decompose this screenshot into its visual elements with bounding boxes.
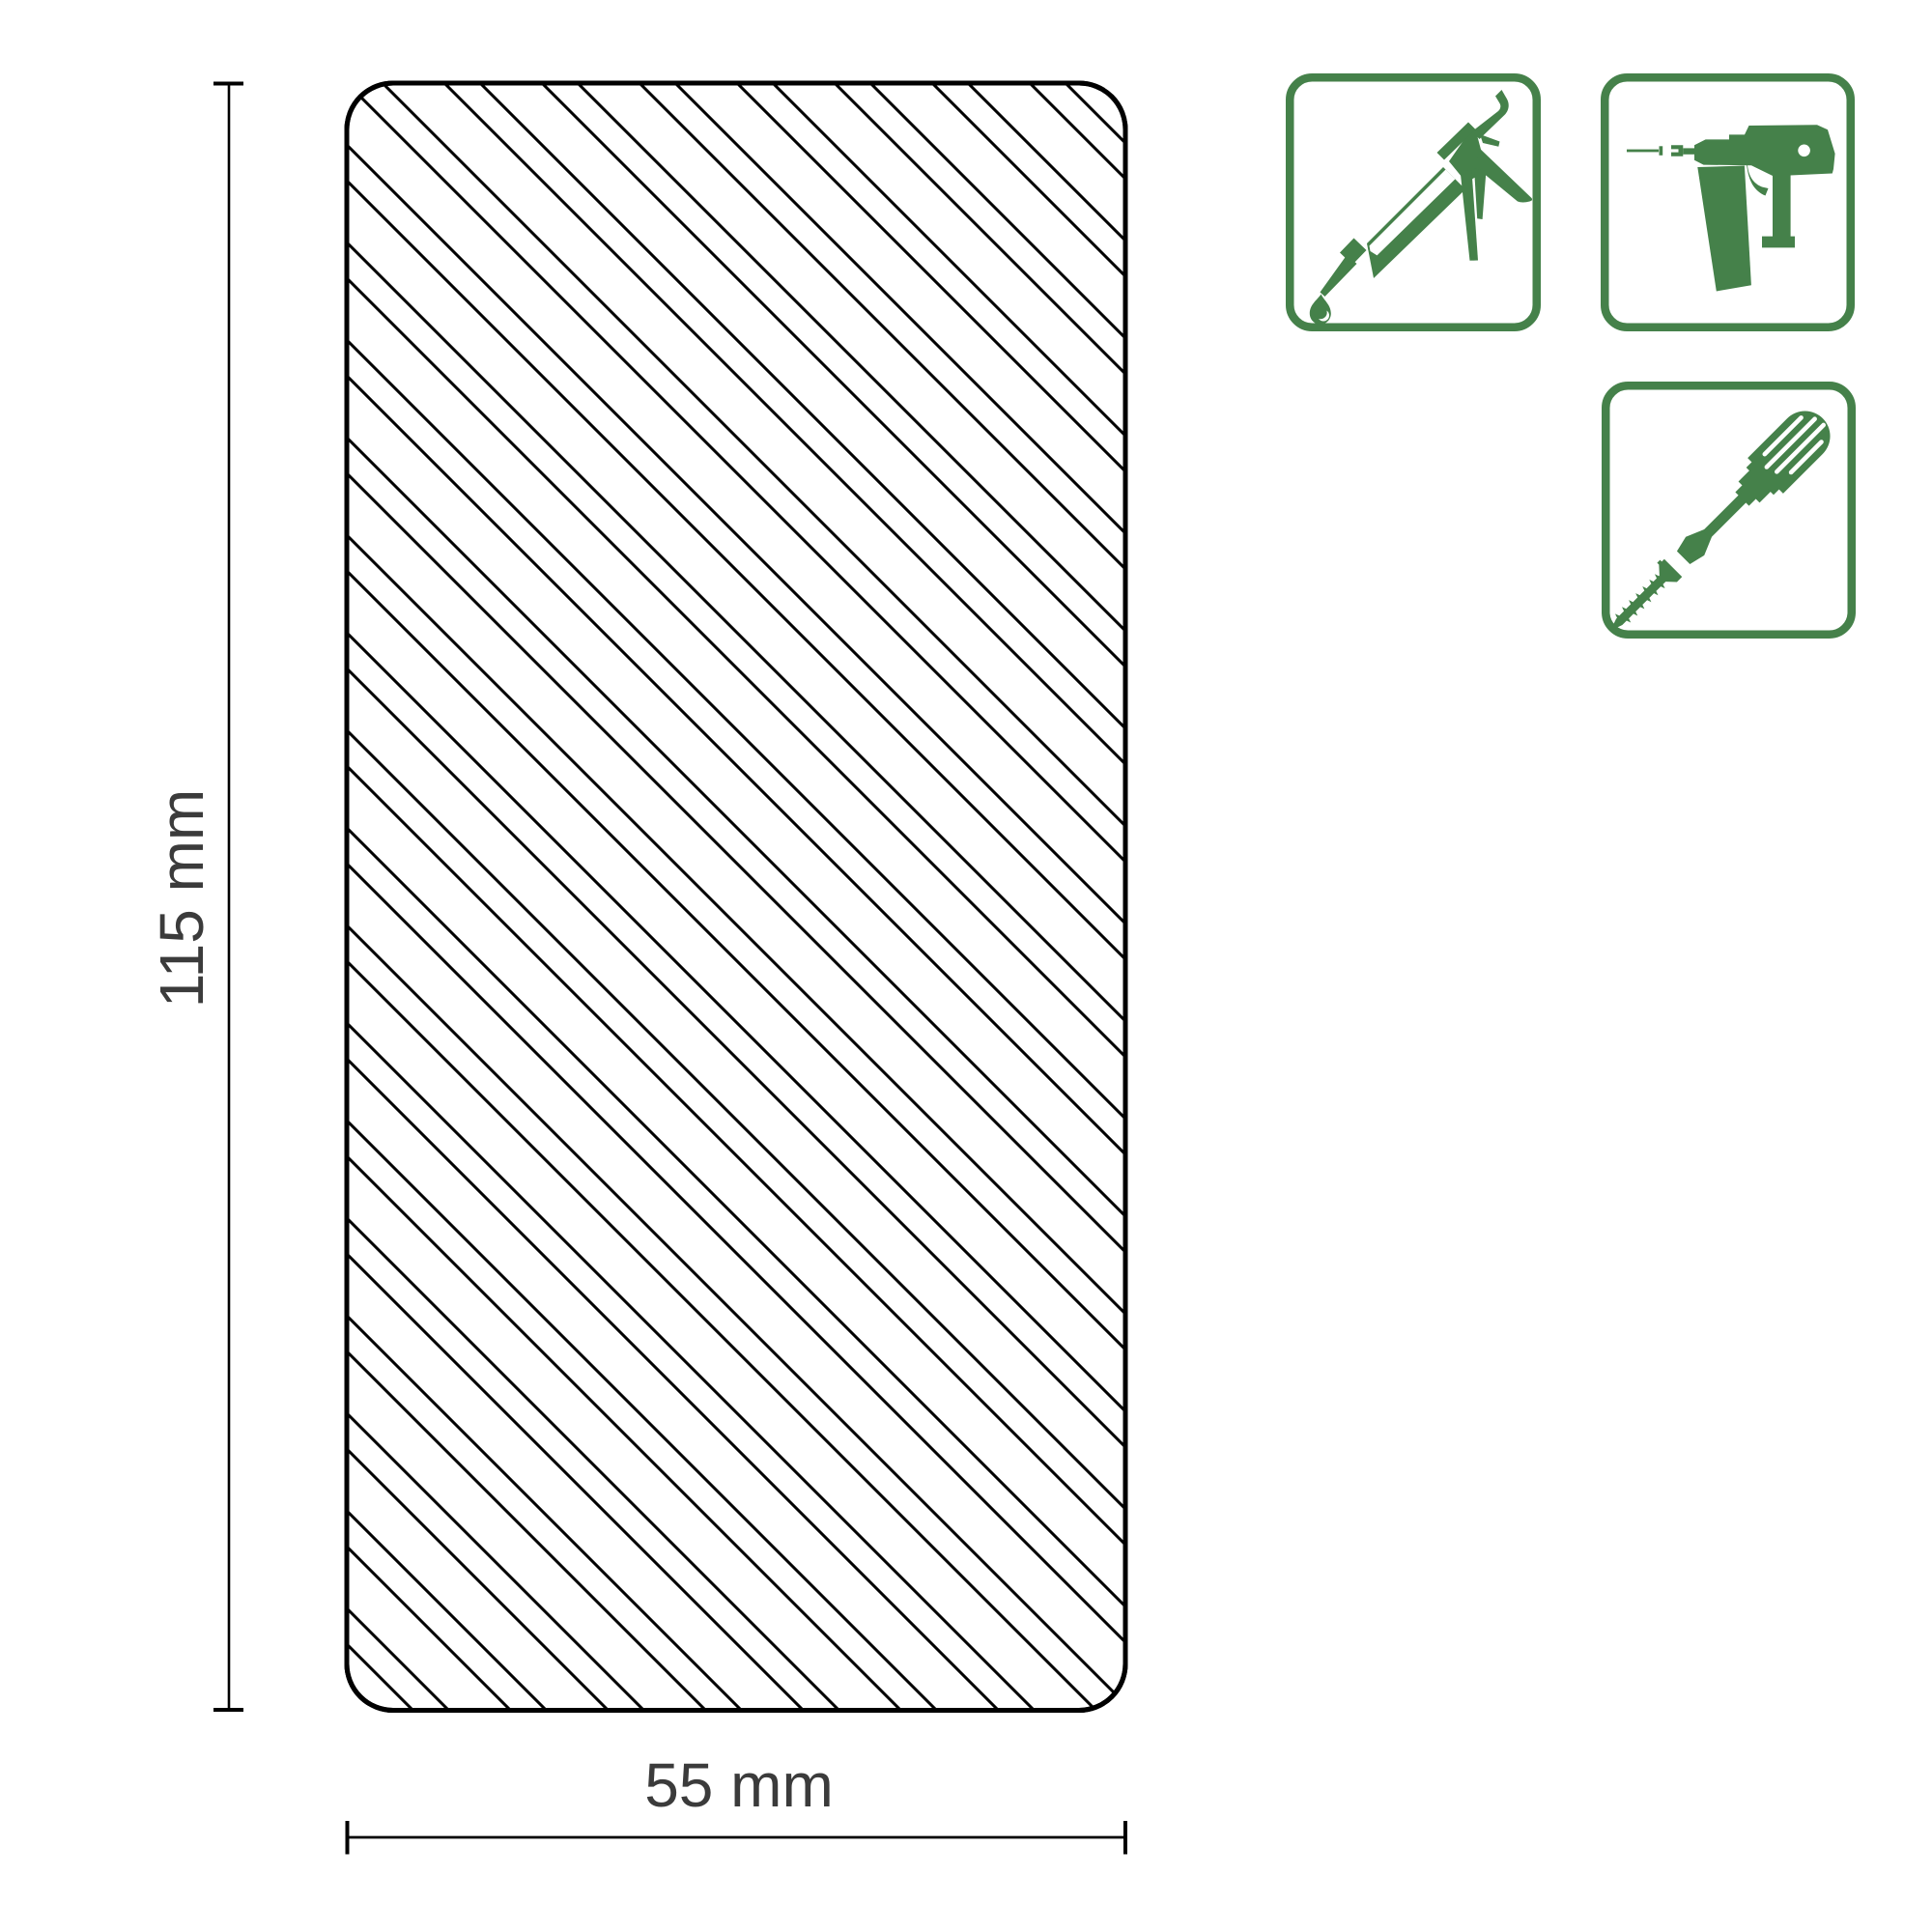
svg-text:55 mm: 55 mm (644, 1750, 834, 1820)
svg-text:115 mm: 115 mm (147, 789, 216, 1008)
